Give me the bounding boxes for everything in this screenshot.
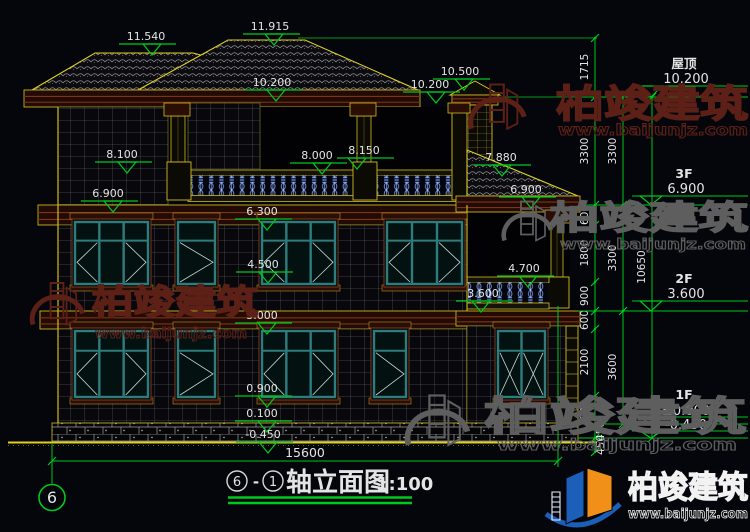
column-pedestal: [547, 277, 569, 308]
cad-viewport: 1715330060018009006002100900450450330033…: [0, 0, 750, 532]
elevation-mark-value: 7.880: [485, 151, 517, 164]
window-head: [493, 322, 550, 328]
logo-block-blue: [566, 470, 584, 524]
axis-number: 6: [47, 488, 57, 507]
elevation-drawing: 1715330060018009006002100900450450330033…: [0, 0, 750, 532]
logo-brand-text: 柏竣建筑: [628, 470, 748, 506]
elevation-mark-value: 10.500: [441, 65, 480, 78]
elevation-mark-value: 0.100: [246, 407, 278, 420]
elevation-mark-value: 0.900: [246, 382, 278, 395]
window-head: [369, 322, 411, 328]
watermark-url-text: www.baijunjz.com: [560, 237, 746, 253]
watermark-url-text: www.baijunjz.com: [497, 435, 737, 454]
elevation-mark-value: 10.200: [411, 78, 450, 91]
drawing-title: 轴立面图: [286, 467, 390, 498]
elevation-mark-value: 8.150: [348, 144, 380, 157]
elevation-mark-value: 8.000: [301, 149, 333, 162]
watermark-brand-text: 柏竣建筑: [484, 394, 746, 440]
watermark-brand-text: 柏竣建筑: [92, 283, 258, 323]
elevation-mark-value: 10.200: [253, 76, 292, 89]
window-head: [382, 213, 467, 219]
title-dash: -: [253, 473, 259, 491]
floor-name: 屋顶: [671, 56, 697, 71]
window-frame: [374, 331, 406, 397]
elevation-mark-value: 6.300: [246, 205, 278, 218]
window-frame: [75, 222, 148, 284]
column-capital: [164, 103, 190, 116]
floor-name: 3F: [675, 166, 692, 181]
window-frame: [387, 222, 462, 284]
elevation-mark-value: 4.500: [247, 258, 279, 271]
dim-value: 600: [579, 310, 591, 330]
elevation-mark-value: 4.700: [508, 262, 540, 275]
drawing-scale: 1:100: [376, 474, 433, 495]
elevation-mark-value: 6.900: [92, 187, 124, 200]
watermark-url-text: www.baijunjz.com: [558, 121, 748, 139]
wall-3f-pier: [188, 103, 260, 170]
window-head: [173, 213, 220, 219]
elevation-mark-value: -0.450: [245, 428, 280, 441]
floor-name: 2F: [675, 271, 692, 286]
window-frame: [262, 222, 335, 284]
watermark-url-text: www.baijunjz.com: [95, 326, 247, 342]
dim-value: 2100: [579, 349, 591, 376]
elevation-mark-value: 11.915: [251, 20, 290, 33]
elevation-mark-value: 11.540: [127, 30, 166, 43]
dim-node: [594, 37, 596, 39]
dim-value: 900: [579, 286, 591, 306]
floor-elevation-value: 3.600: [667, 287, 704, 302]
bottom-dim-value: 15600: [285, 445, 325, 460]
dim-value: 1715: [579, 54, 591, 81]
wing-rail-bottom: [467, 303, 549, 309]
dim-node: [594, 328, 596, 330]
watermark-brand-text: 柏竣建筑: [556, 82, 748, 126]
balustrade-bottom-rail: [188, 196, 460, 202]
elevation-mark-value: 8.100: [106, 148, 138, 161]
dim-value: 10650: [636, 250, 648, 283]
dim-node: [594, 281, 596, 283]
watermark-brand-text: 柏竣建筑: [550, 198, 748, 237]
window-head: [70, 213, 153, 219]
dim-value: 3300: [579, 138, 591, 165]
elevation-mark-value: 3.600: [467, 287, 499, 300]
title-bubble-a: 6: [233, 475, 241, 490]
balusters-3f: [190, 176, 458, 196]
window-frame: [178, 222, 215, 284]
dim-value: 3600: [607, 354, 619, 381]
corner-pilaster: [452, 107, 467, 200]
title-bubble-b: 1: [269, 475, 277, 490]
logo-block-orange: [587, 468, 612, 518]
elevation-mark-value: 6.900: [510, 183, 542, 196]
column-pedestal: [167, 162, 191, 200]
logo-url-text: www.baijunjz.com: [628, 506, 748, 522]
wing-rail-top: [467, 277, 549, 283]
floor-elevation-value: 6.900: [667, 182, 704, 197]
dim-value: 3300: [607, 138, 619, 165]
pilaster-capital: [448, 103, 470, 113]
column-capital: [350, 103, 376, 116]
